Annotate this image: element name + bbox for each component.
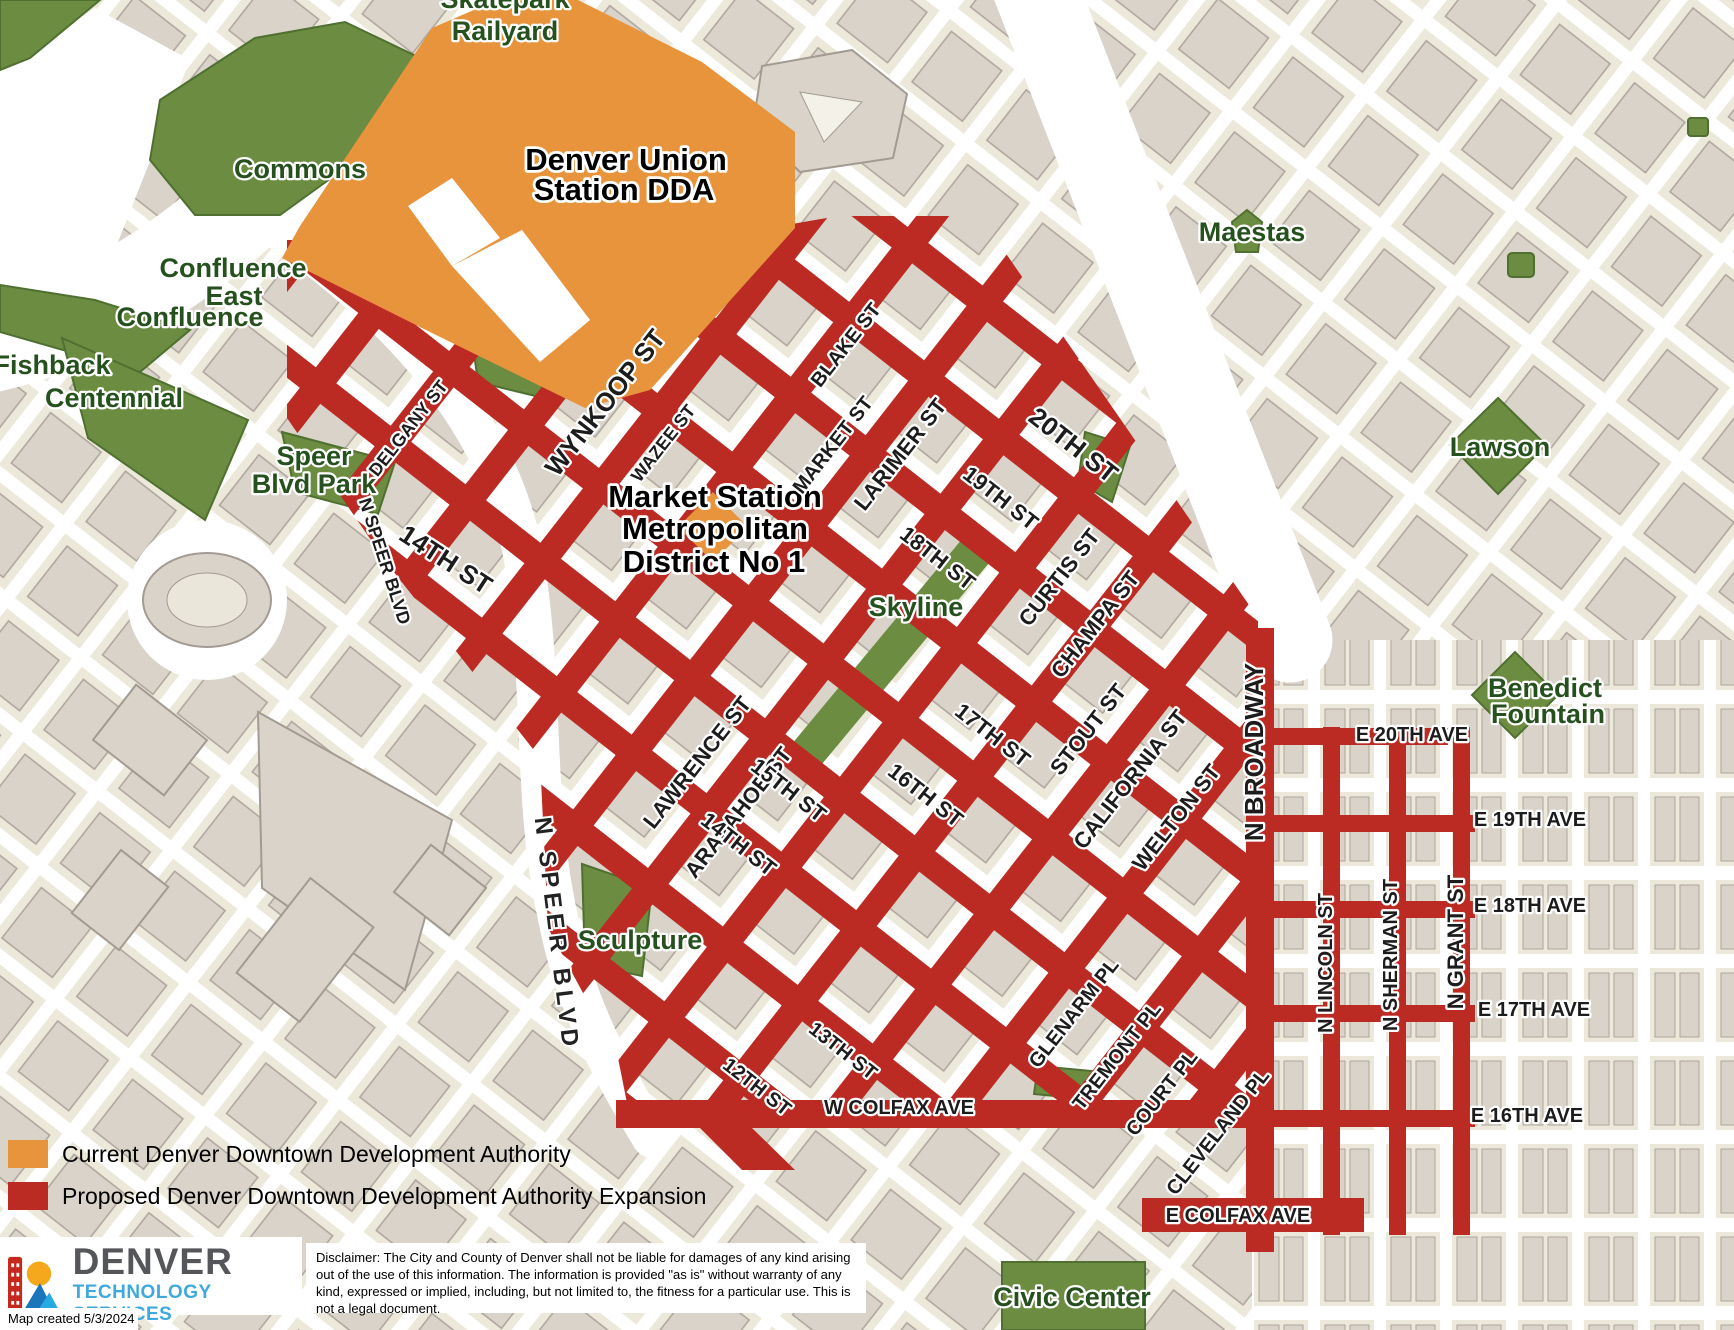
area-label: Sculpture (578, 925, 703, 955)
map-created-date: Map created 5/3/2024 (0, 1308, 138, 1330)
street-label: E 17TH AVE (1478, 999, 1590, 1021)
e-19th-ave-street (1252, 815, 1475, 832)
street-label: E 19TH AVE (1474, 809, 1586, 831)
footer-org-name: DENVER (73, 1243, 302, 1280)
street-label: W COLFAX AVE (824, 1097, 974, 1119)
district-label-union-station: Station DDA (534, 172, 715, 207)
area-label: Maestas (1199, 217, 1306, 247)
legend-swatch-proposed-expansion (8, 1182, 48, 1210)
e-17th-ave-street (1252, 1005, 1475, 1022)
district-label-market-station: Metropolitan (622, 511, 808, 546)
area-label: Commons (234, 154, 366, 184)
area-label: Blvd Park (252, 469, 378, 499)
area-label: Lawson (1450, 432, 1551, 462)
area-label: Confluence (159, 253, 306, 283)
area-label: Fishback (0, 350, 112, 380)
street-label: N BROADWAY (1239, 663, 1269, 841)
map-page: Skatepark Railyard Commons Confluence Ea… (0, 0, 1734, 1330)
district-label-market-station: District No 1 (623, 544, 806, 579)
street-label: E 16TH AVE (1471, 1105, 1583, 1127)
legend-item-current: Current Denver Downtown Development Auth… (8, 1140, 706, 1168)
street-label: E COLFAX AVE (1166, 1205, 1310, 1227)
street-label: E 20TH AVE (1356, 724, 1468, 746)
street-label: N GRANT ST (1443, 874, 1468, 1009)
area-label: Fountain (1491, 699, 1605, 729)
e-16th-ave-street (1252, 1110, 1475, 1127)
area-label: Civic Center (993, 1282, 1151, 1312)
street-label: N SHERMAN ST (1380, 879, 1402, 1031)
city-map: Skatepark Railyard Commons Confluence Ea… (0, 0, 1734, 1330)
denver-city-logo-icon (8, 1253, 61, 1317)
area-label: Skyline (869, 592, 964, 622)
legend-label: Current Denver Downtown Development Auth… (62, 1141, 571, 1168)
legend-swatch-current-dda (8, 1140, 48, 1168)
area-label: Confluence (116, 302, 263, 332)
legend: Current Denver Downtown Development Auth… (8, 1140, 706, 1210)
street-label: E 18TH AVE (1474, 895, 1586, 917)
area-label: Skatepark (440, 0, 570, 14)
area-label: Speer (276, 441, 352, 471)
footer-logo-box: DENVER TECHNOLOGY SERVICES (0, 1237, 302, 1315)
disclaimer-text: Disclaimer: The City and County of Denve… (306, 1243, 866, 1313)
legend-item-proposed: Proposed Denver Downtown Development Aut… (8, 1182, 706, 1210)
area-label: Railyard (452, 16, 559, 46)
street-label: N LINCOLN ST (1315, 893, 1337, 1033)
area-label: Centennial (45, 383, 183, 413)
e-18th-ave-street (1252, 901, 1475, 918)
legend-label: Proposed Denver Downtown Development Aut… (62, 1183, 706, 1210)
